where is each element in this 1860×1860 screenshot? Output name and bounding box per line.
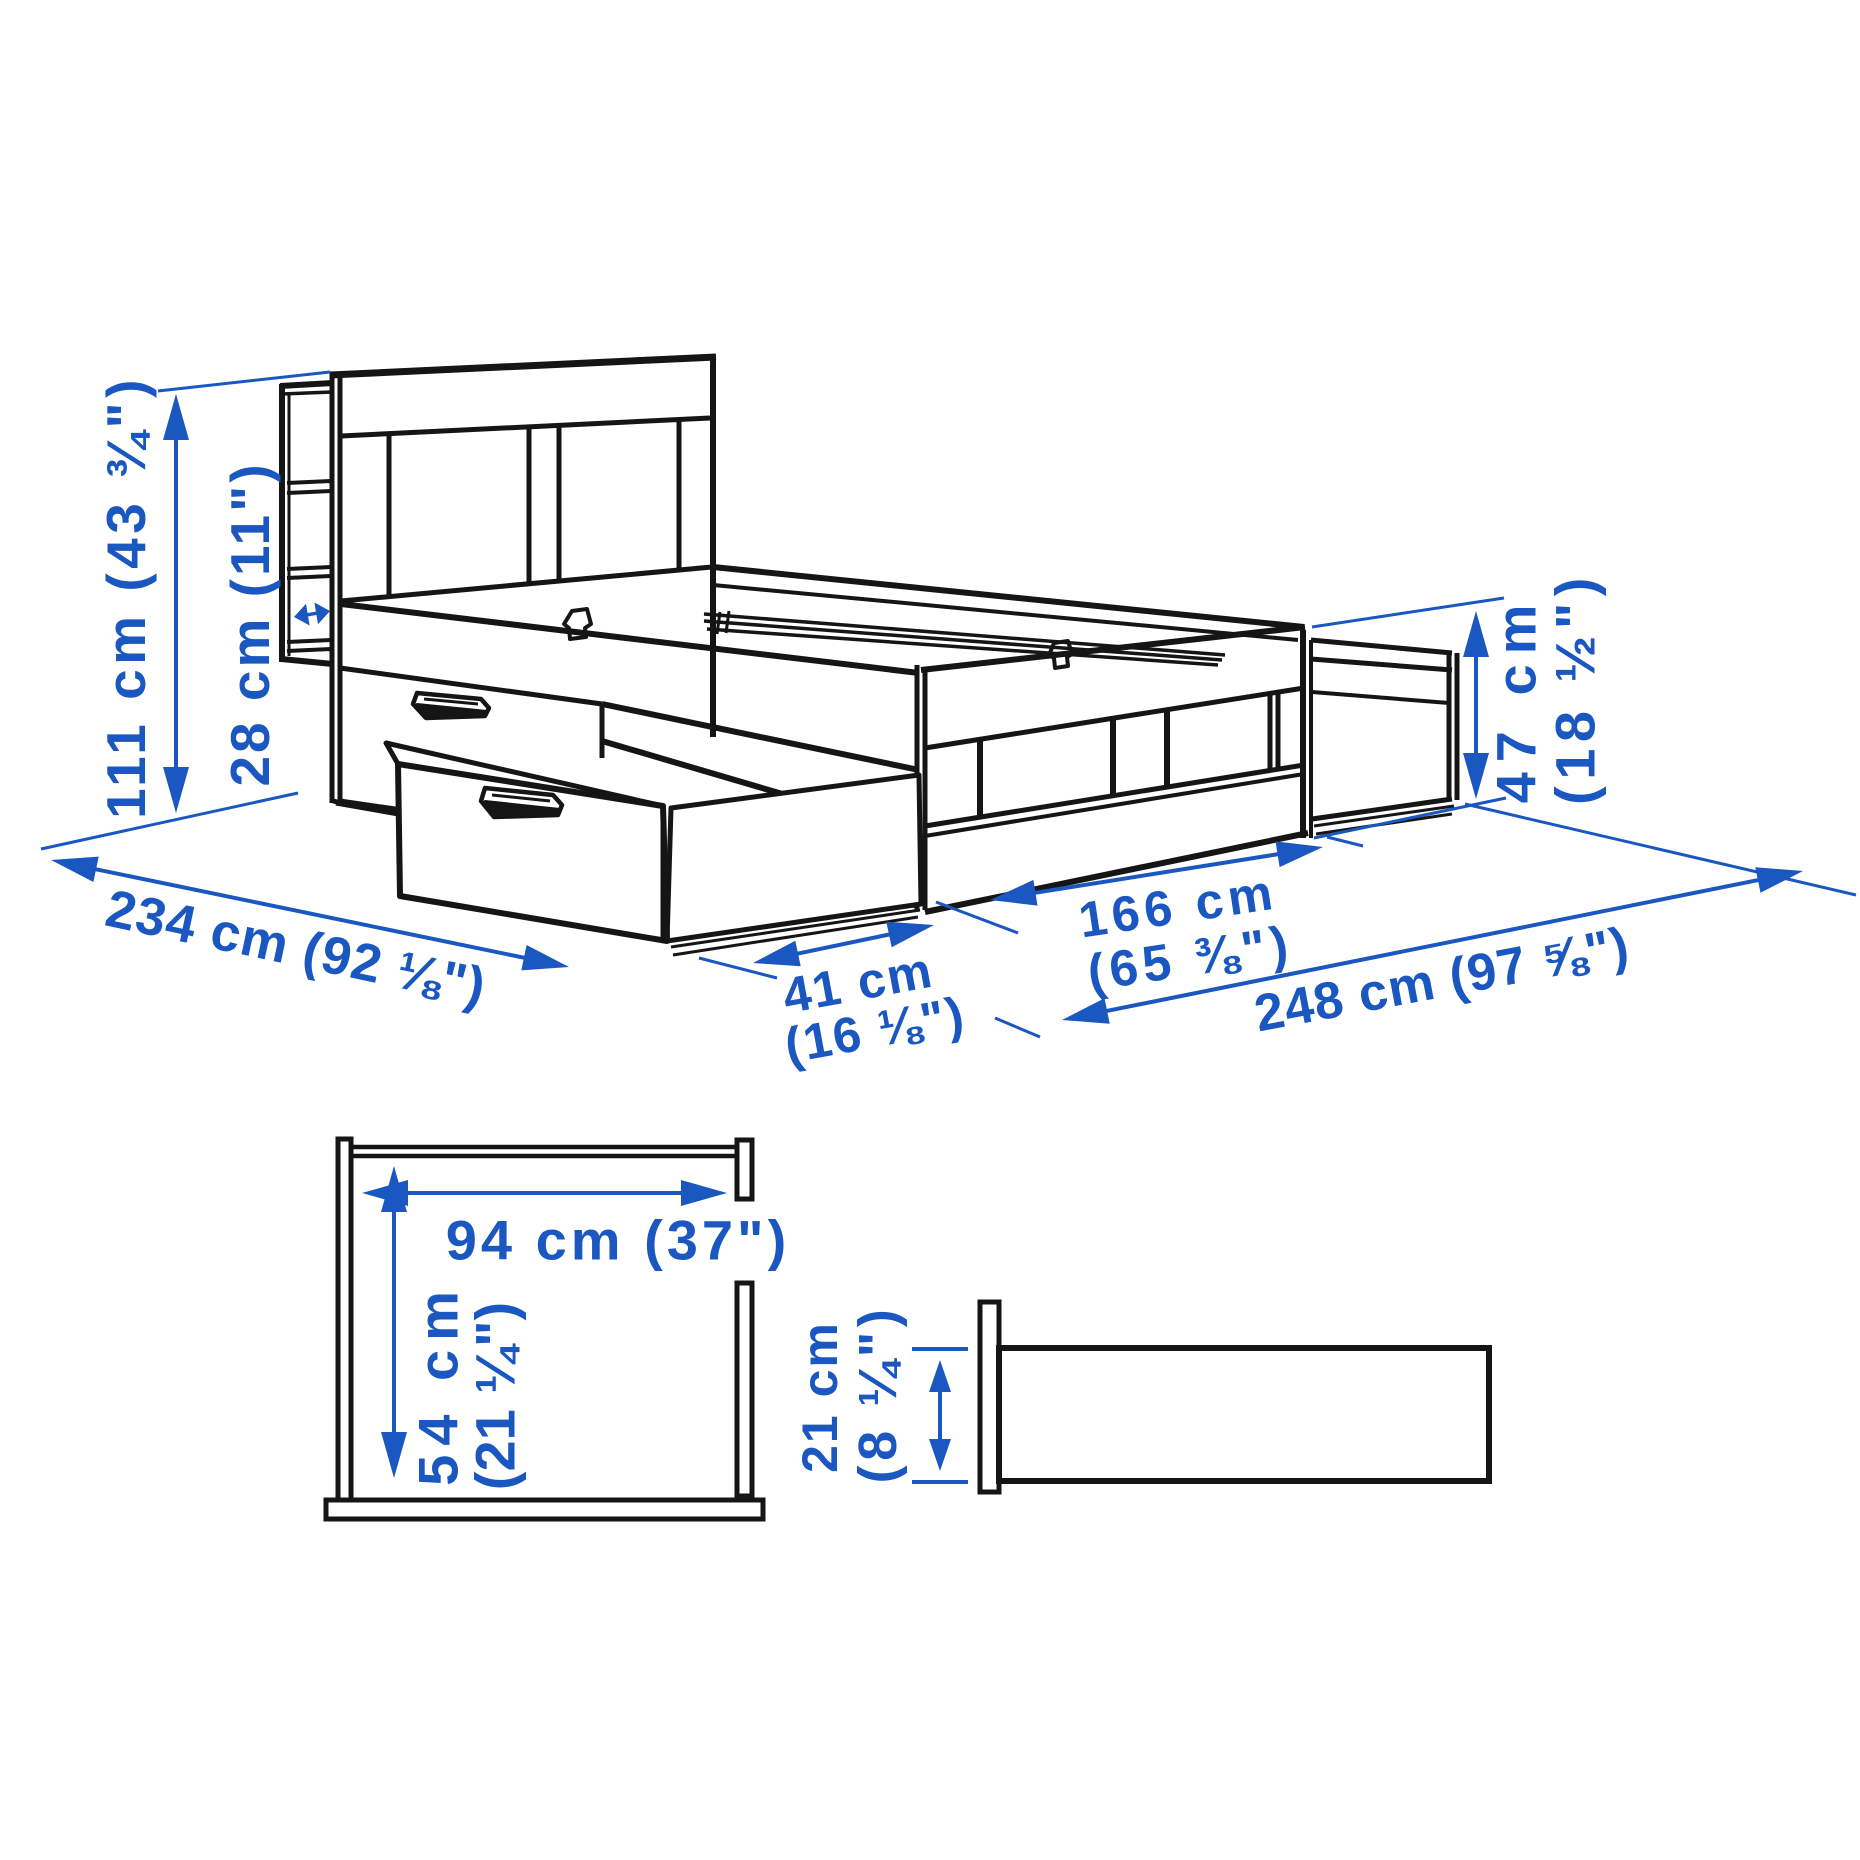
svg-text:21 cm: 21 cm (792, 1321, 848, 1473)
svg-text:111 cm (43 ¾"): 111 cm (43 ¾") (95, 375, 157, 819)
svg-text:(8 ¼"): (8 ¼") (848, 1305, 908, 1484)
svg-text:28 cm (11"): 28 cm (11") (219, 461, 281, 786)
svg-text:47 cm: 47 cm (1485, 595, 1548, 804)
svg-text:54 cm: 54 cm (407, 1282, 470, 1486)
svg-text:(18 ½"): (18 ½") (1544, 571, 1607, 805)
svg-text:94 cm (37"): 94 cm (37") (446, 1209, 790, 1272)
svg-text:(21 ¼"): (21 ¼") (464, 1302, 527, 1490)
